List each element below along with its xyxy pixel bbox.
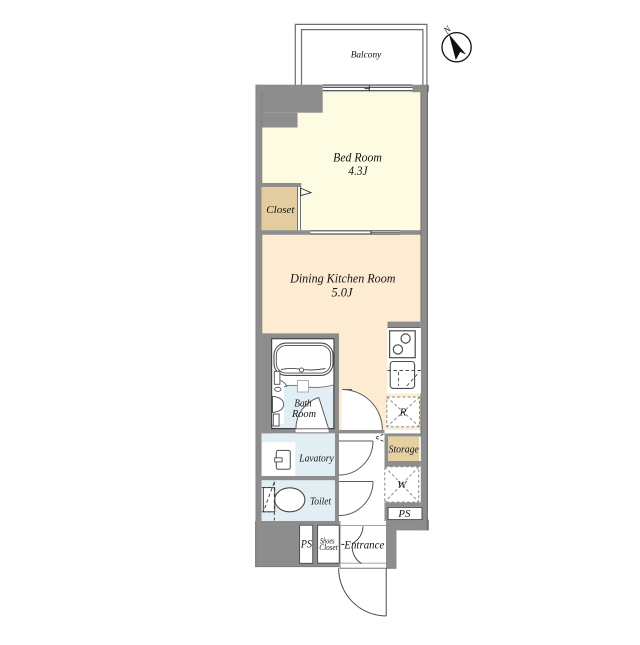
svg-text:Dining Kitchen Room: Dining Kitchen Room xyxy=(289,270,395,285)
svg-text:PS: PS xyxy=(300,539,312,551)
svg-text:N: N xyxy=(442,24,455,37)
svg-text:Storage: Storage xyxy=(389,445,420,456)
svg-text:W: W xyxy=(397,479,407,491)
svg-text:5.0J: 5.0J xyxy=(332,285,354,300)
svg-text:Room: Room xyxy=(291,408,316,420)
svg-text:Closet: Closet xyxy=(319,542,338,552)
svg-text:Lavatory: Lavatory xyxy=(298,453,333,465)
svg-text:PS: PS xyxy=(397,508,410,520)
svg-text:Entrance: Entrance xyxy=(343,539,384,551)
svg-text:Closet: Closet xyxy=(266,204,295,216)
svg-text:4.3J: 4.3J xyxy=(348,163,368,178)
svg-text:Balcony: Balcony xyxy=(351,51,382,61)
svg-text:Toilet: Toilet xyxy=(310,496,332,508)
svg-text:R: R xyxy=(399,407,407,419)
